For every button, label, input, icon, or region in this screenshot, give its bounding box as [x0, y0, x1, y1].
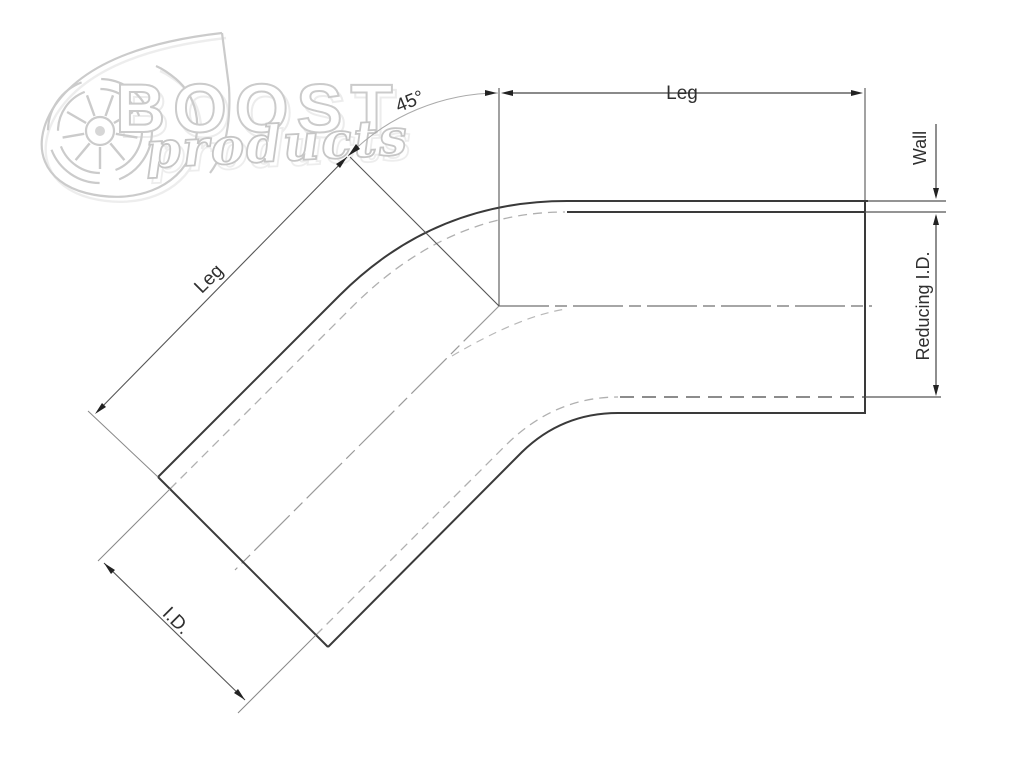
outer-top-edge	[158, 201, 868, 477]
inner-top-hidden-line	[170, 212, 565, 489]
wall-arrow-down	[933, 188, 939, 199]
reducer-throat-hidden-line	[452, 309, 566, 356]
turbo-hub-center	[95, 126, 105, 136]
drawing-canvas: BOOST products BOOST	[0, 0, 1024, 768]
pipe-hidden-lines	[170, 212, 865, 635]
id-label: I.D.	[158, 603, 194, 639]
leg-top-arrow-left	[501, 90, 513, 96]
arc-arrowhead-right	[485, 90, 497, 96]
reducing-id-arrow-down	[933, 385, 939, 396]
pipe-outline	[158, 200, 868, 647]
leg-diagonal-extension-line	[88, 411, 158, 477]
elbow-diagram: BOOST products BOOST	[0, 0, 1024, 768]
reducing-id-arrow-up	[933, 214, 939, 225]
outer-bottom-edge	[328, 413, 865, 647]
leg-top-arrow-right	[851, 90, 863, 96]
wall-reducing-dimensions: Wall Reducing I.D.	[865, 124, 946, 397]
leg-diagonal-label: Leg	[190, 260, 227, 297]
reducing-id-label-group: Reducing I.D.	[913, 251, 933, 360]
leg-top-label: Leg	[666, 83, 698, 104]
reducing-id-label: Reducing I.D.	[913, 251, 933, 360]
inner-bottom-hidden-line	[316, 397, 618, 635]
axis-extension-line	[350, 157, 499, 306]
leg-diagonal-label-group: Leg	[190, 260, 227, 297]
id-extension-line-top	[98, 489, 170, 561]
id-label-group: I.D.	[158, 603, 194, 639]
id-extension-line-bottom	[238, 635, 316, 713]
boost-logo: BOOST products BOOST	[42, 33, 415, 202]
centerlines	[235, 306, 872, 570]
wall-label-group: Wall	[910, 131, 930, 165]
diagonal-centerline	[235, 306, 499, 570]
leg-top-dimension: Leg	[501, 83, 865, 200]
wall-label: Wall	[910, 131, 930, 165]
leg-diagonal-dimension: Leg	[88, 157, 347, 477]
